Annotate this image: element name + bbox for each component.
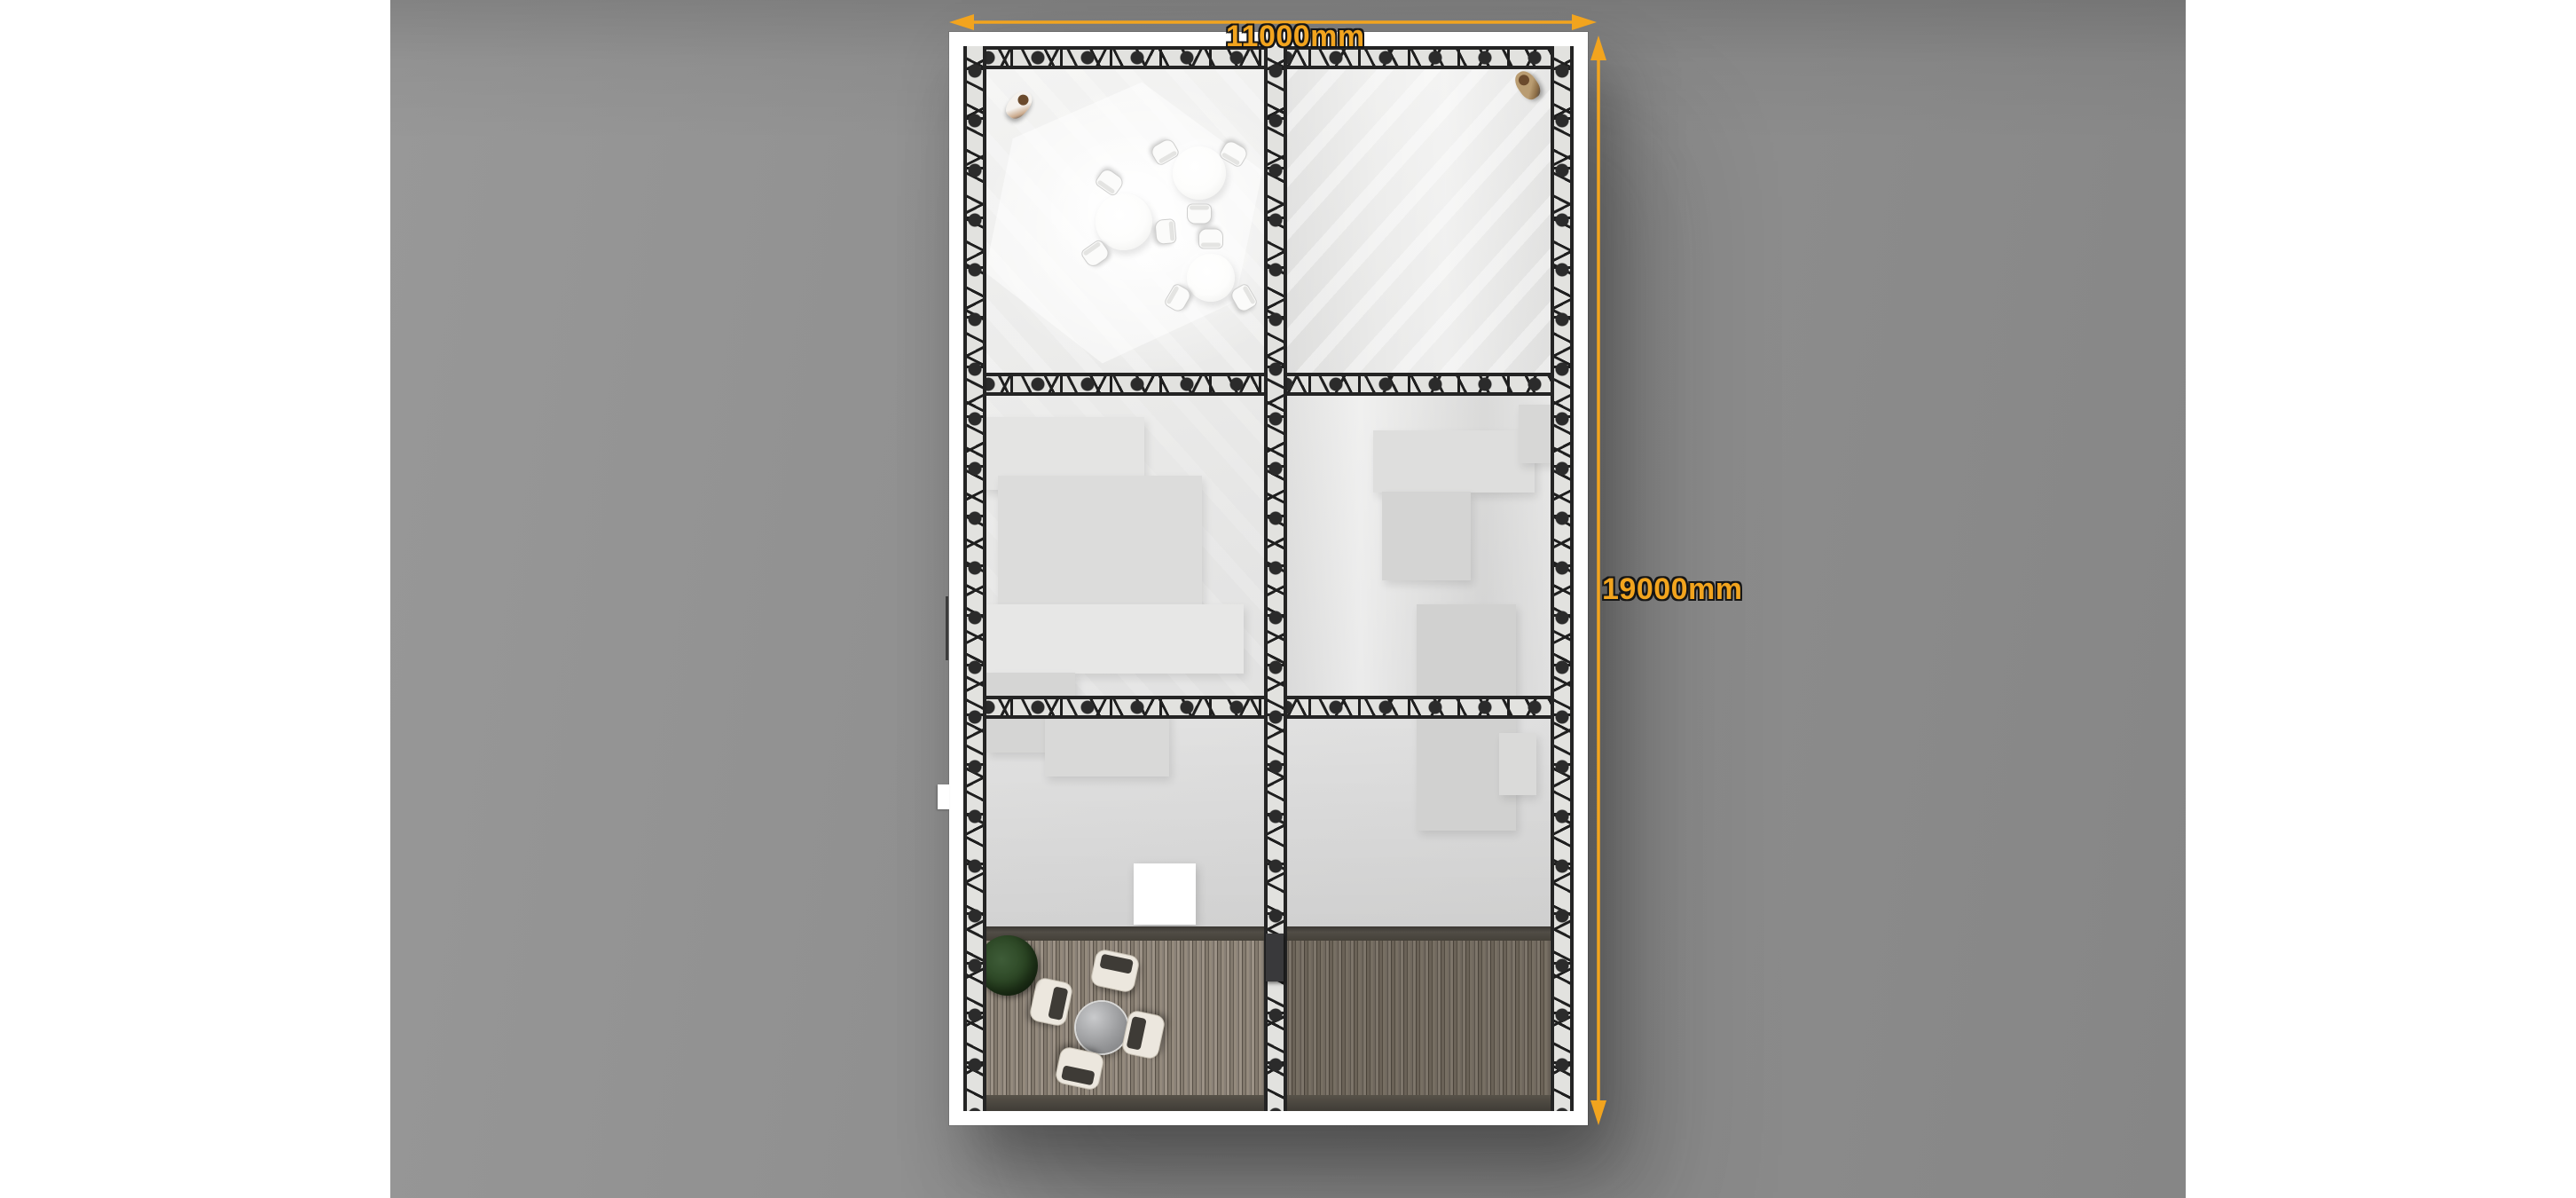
exhibit-block [1045,711,1169,776]
dimension-width-label: 11000mm [1226,20,1365,54]
cafe-table-2 [1173,146,1226,200]
cafe-chair [1188,205,1211,224]
dimension-height-label: 19000mm [1602,572,1743,607]
truss-right [1551,46,1574,1111]
cafe-chair [1199,230,1222,248]
render-canvas [390,0,2186,1198]
booth-plan [949,32,1588,1125]
cafe-chair [1155,219,1175,244]
wall-tab [938,784,949,809]
terrace-plant [978,935,1038,996]
exhibit-block [1382,492,1471,580]
terrace-dining-table [1076,1002,1127,1053]
page: 11000mm 19000mm [0,0,2576,1198]
terrace-deck-shade [1287,926,1574,1111]
exhibit-block [998,476,1202,609]
truss-counter [1266,934,1284,981]
door-leaf-line [946,596,948,660]
exhibit-block [986,604,1244,674]
exhibit-block [1373,430,1535,493]
exhibit-block [1499,733,1536,795]
truss-left [963,46,986,1111]
cafe-table-1 [1096,193,1152,250]
white-podium [1134,863,1196,925]
room-top-right [1287,69,1551,373]
cafe-table-3 [1187,254,1235,302]
